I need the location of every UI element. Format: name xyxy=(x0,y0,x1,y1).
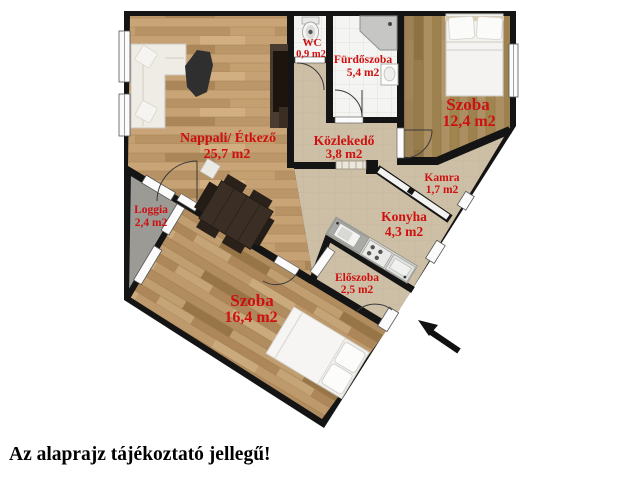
svg-text:25,7 m2: 25,7 m2 xyxy=(204,147,251,162)
svg-text:Szoba: Szoba xyxy=(446,95,490,114)
svg-text:3,8 m2: 3,8 m2 xyxy=(326,146,363,161)
svg-text:Nappali/ Étkező: Nappali/ Étkező xyxy=(180,129,276,146)
svg-text:16,4 m2: 16,4 m2 xyxy=(224,309,277,326)
svg-text:4,3 m2: 4,3 m2 xyxy=(385,224,423,239)
svg-text:Szoba: Szoba xyxy=(230,291,274,310)
svg-text:12,4 m2: 12,4 m2 xyxy=(442,113,495,130)
svg-text:Loggia: Loggia xyxy=(134,204,168,216)
svg-text:WC: WC xyxy=(303,37,322,49)
svg-text:Fürdőszoba: Fürdőszoba xyxy=(334,54,392,66)
svg-text:1,7 m2: 1,7 m2 xyxy=(426,184,459,196)
svg-text:2,5 m2: 2,5 m2 xyxy=(341,284,374,296)
svg-text:2,4 m2: 2,4 m2 xyxy=(135,217,168,229)
svg-text:Kamra: Kamra xyxy=(424,172,459,184)
svg-text:Konyha: Konyha xyxy=(381,209,427,224)
svg-text:Az alaprajz tájékoztató jelleg: Az alaprajz tájékoztató jellegű! xyxy=(9,444,271,465)
svg-text:0,9 m2: 0,9 m2 xyxy=(296,49,326,60)
svg-text:Előszoba: Előszoba xyxy=(335,272,379,284)
svg-text:5,4 m2: 5,4 m2 xyxy=(347,67,380,79)
